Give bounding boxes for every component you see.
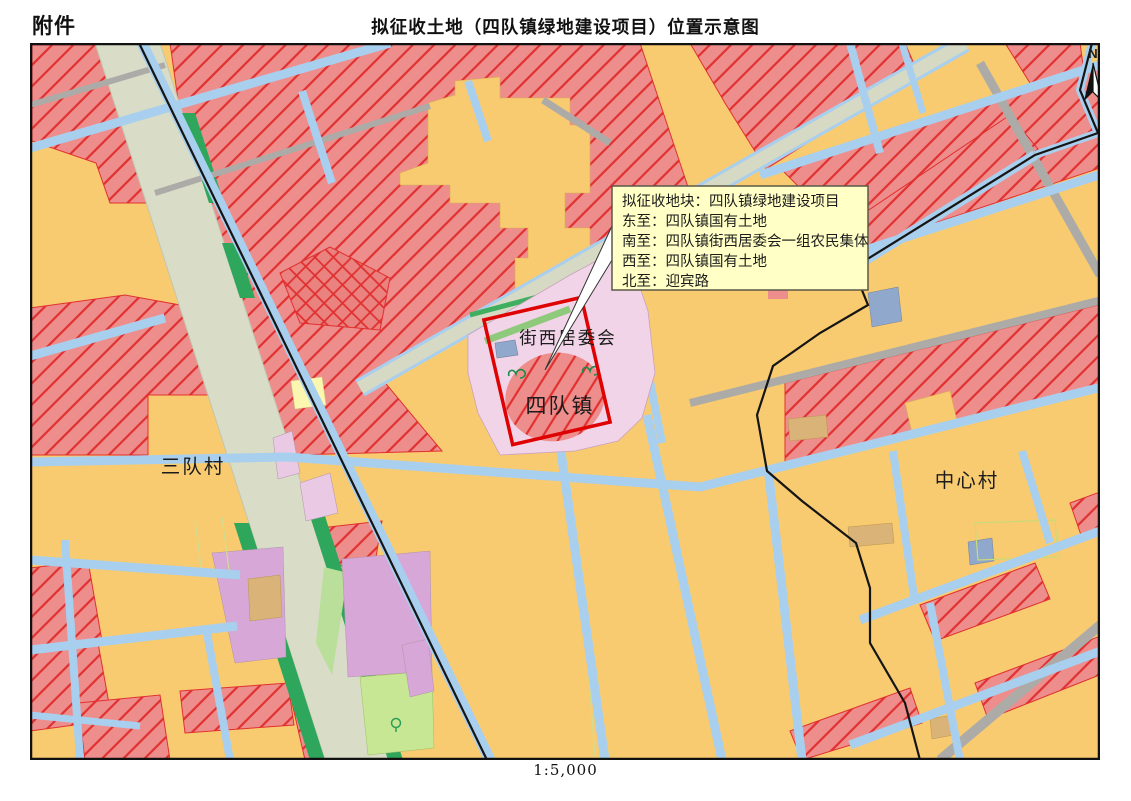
map-title: 拟征收土地（四队镇绿地建设项目）位置示意图 (0, 14, 1131, 39)
callout-line: 北至：迎宾路 (622, 273, 709, 290)
label-sandui-village: 三队村 (161, 455, 226, 478)
page: 附件 拟征收土地（四队镇绿地建设项目）位置示意图 (0, 0, 1131, 801)
callout-line: 南至：四队镇街西居委会一组农民集体 (622, 233, 869, 250)
callout-line: 东至：四队镇国有土地 (622, 213, 767, 230)
site-map: 街西居委会 四队镇 三队村 中心村 拟征收地块：四队镇绿地建设项目 东至：四队镇… (30, 43, 1100, 760)
callout-line: 西至：四队镇国有土地 (622, 253, 767, 270)
map-frame: 街西居委会 四队镇 三队村 中心村 拟征收地块：四队镇绿地建设项目 东至：四队镇… (30, 43, 1100, 760)
label-zhongxin-village: 中心村 (935, 469, 1000, 492)
north-label: N (1088, 46, 1097, 61)
callout-line: 拟征收地块：四队镇绿地建设项目 (622, 193, 840, 210)
label-sidui-town: 四队镇 (526, 394, 595, 418)
pond (495, 340, 518, 358)
scale-label: 1:5,000 (0, 761, 1131, 779)
